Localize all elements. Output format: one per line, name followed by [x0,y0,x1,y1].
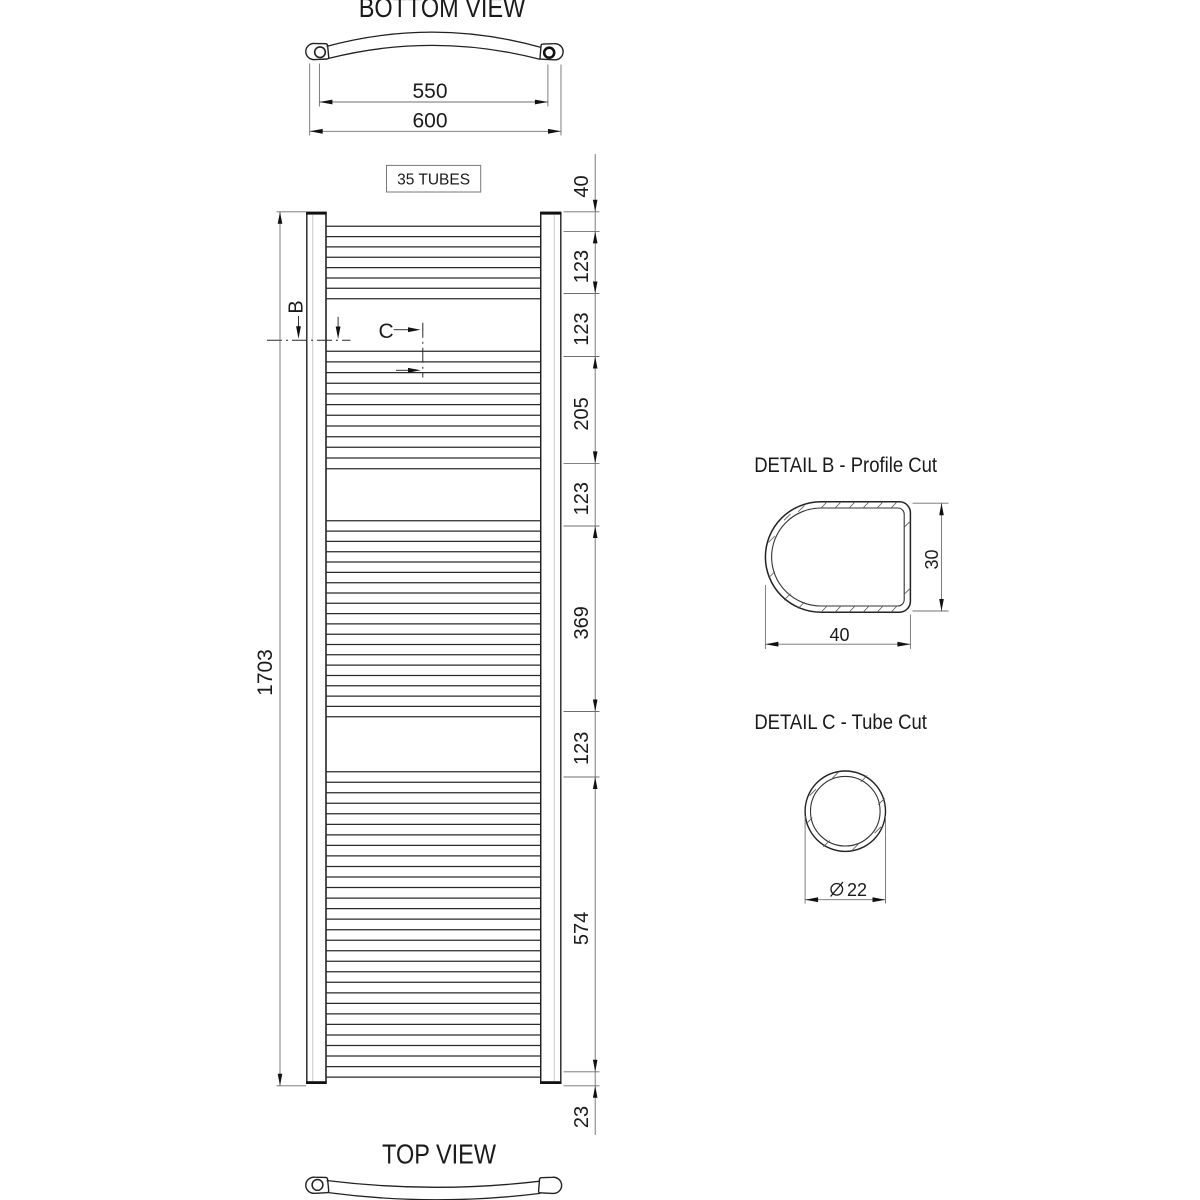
svg-text:123: 123 [571,250,593,283]
svg-text:369: 369 [571,606,593,639]
svg-text:BOTTOM VIEW: BOTTOM VIEW [359,0,526,23]
svg-text:22: 22 [847,880,867,900]
svg-text:DETAIL B - Profile Cut: DETAIL B - Profile Cut [754,454,937,477]
svg-text:550: 550 [412,80,447,103]
svg-text:123: 123 [571,732,593,765]
svg-text:600: 600 [412,109,447,132]
svg-text:30: 30 [922,549,942,569]
svg-text:123: 123 [571,312,593,345]
svg-text:123: 123 [571,482,593,515]
svg-text:DETAIL C - Tube Cut: DETAIL C - Tube Cut [754,711,927,734]
svg-text:574: 574 [571,912,593,945]
svg-text:TOP VIEW: TOP VIEW [382,1140,496,1170]
svg-text:1703: 1703 [254,649,277,696]
svg-text:40: 40 [571,175,593,197]
svg-text:B: B [286,300,308,313]
svg-text:35 TUBES: 35 TUBES [397,172,470,189]
svg-text:40: 40 [829,625,849,645]
svg-text:23: 23 [571,1106,593,1128]
svg-text:205: 205 [571,397,593,430]
svg-text:C: C [379,320,394,343]
